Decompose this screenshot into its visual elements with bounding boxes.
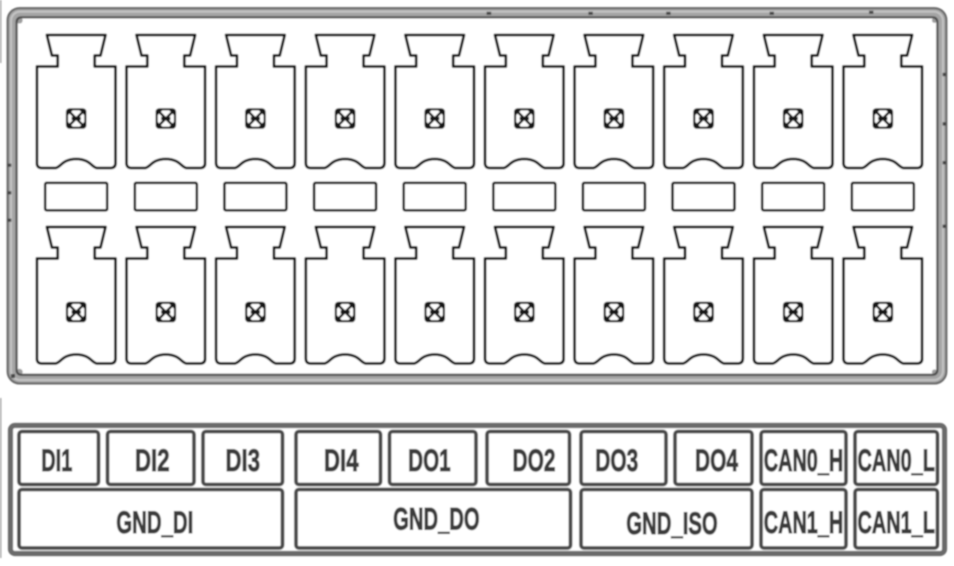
svg-text:GND_ISO: GND_ISO — [626, 505, 718, 541]
svg-text:CAN0_L: CAN0_L — [857, 442, 935, 478]
svg-text:DO4: DO4 — [695, 442, 738, 478]
svg-text:DI3: DI3 — [226, 442, 261, 478]
svg-text:DO3: DO3 — [595, 442, 638, 478]
svg-text:DO1: DO1 — [408, 442, 451, 478]
svg-text:DI2: DI2 — [135, 442, 170, 478]
svg-text:DI1: DI1 — [41, 442, 72, 478]
svg-text:GND_DO: GND_DO — [393, 501, 480, 537]
svg-text:CAN1_H: CAN1_H — [764, 504, 844, 540]
svg-text:CAN1_L: CAN1_L — [857, 504, 935, 540]
svg-text:DI4: DI4 — [324, 442, 359, 478]
svg-text:GND_DI: GND_DI — [116, 504, 193, 540]
svg-text:DO2: DO2 — [513, 442, 556, 478]
svg-text:CAN0_H: CAN0_H — [764, 442, 844, 478]
